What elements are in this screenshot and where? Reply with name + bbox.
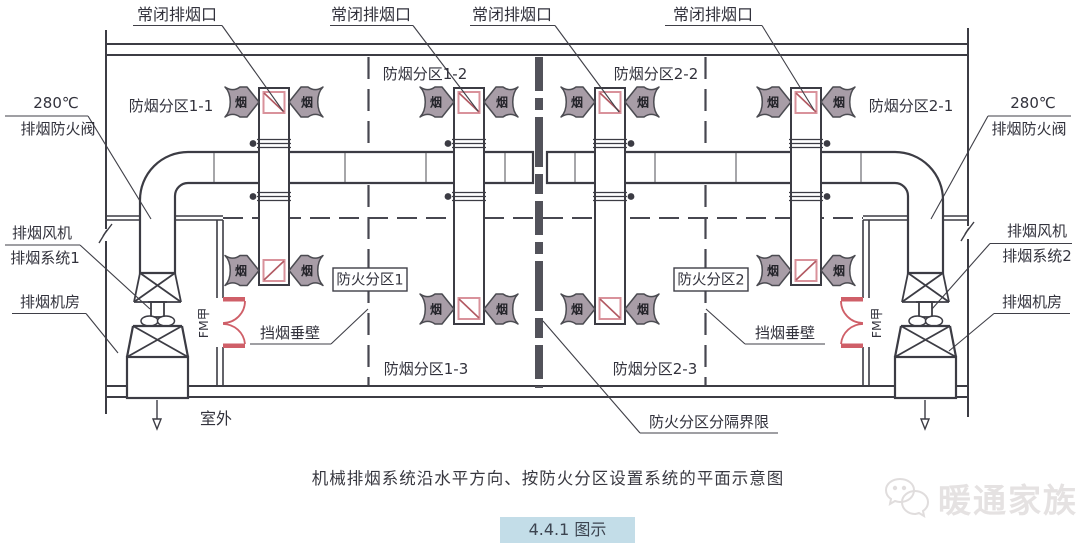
smoke-label: 烟: [235, 264, 247, 278]
smoke-label: 烟: [767, 96, 779, 110]
chat-bubbles-icon: [882, 475, 932, 521]
right-fire-door: [841, 297, 863, 348]
smoke-label: 烟: [496, 96, 508, 110]
smoke-barrier-label-right: 挡烟垂壁: [755, 324, 815, 342]
fire-compartment-1-label: 防火分区1: [336, 272, 403, 289]
smoke-label: 烟: [767, 264, 779, 278]
fan-label-left: 排烟风机: [12, 224, 72, 242]
smoke-label: 烟: [833, 264, 845, 278]
closed-vent-label: 常闭排烟口: [472, 5, 552, 24]
fan-room-label-right: 排烟机房: [1002, 293, 1062, 311]
left-fire-door: [223, 297, 245, 348]
system-1-label: 排烟系统1: [10, 249, 80, 267]
closed-vent-label: 常闭排烟口: [673, 5, 753, 24]
outdoor-discharge-arrows: [153, 400, 929, 429]
zone-label-1-3: 防烟分区1-3: [384, 360, 469, 378]
left-exhaust-fan: [127, 273, 188, 398]
system-2-label: 排烟系统2: [1002, 247, 1072, 265]
closed-vent-label: 常闭排烟口: [331, 5, 411, 24]
closed-vent-label: 常闭排烟口: [137, 5, 217, 24]
plan-diagram: 烟 烟 烟 烟 烟 烟 烟 烟 烟 烟 烟 烟 烟 烟 烟 烟: [0, 0, 1080, 545]
smoke-exhaust-plan-figure: 烟 烟 烟 烟 烟 烟 烟 烟 烟 烟 烟 烟 烟 烟 烟 烟: [0, 0, 1080, 545]
smoke-label: 烟: [301, 264, 313, 278]
fire-boundary-label: 防火分区分隔界限: [649, 413, 769, 431]
outdoor-label: 室外: [200, 409, 232, 428]
smoke-label: 烟: [833, 96, 845, 110]
smoke-label: 烟: [571, 303, 583, 317]
zone-label-1-1: 防烟分区1-1: [129, 97, 214, 115]
zone-label-1-2: 防烟分区1-2: [383, 65, 468, 83]
temp-label-left: 280℃: [33, 94, 78, 112]
fire-damper-label-left: 排烟防火阀: [20, 120, 95, 138]
fire-door-label-right: FM甲: [869, 308, 884, 338]
watermark: 暖通家族: [882, 474, 1078, 522]
smoke-barrier-label-left: 挡烟垂壁: [260, 324, 320, 342]
smoke-label: 烟: [496, 303, 508, 317]
smoke-label: 烟: [571, 96, 583, 110]
figure-title: 机械排烟系统沿水平方向、按防火分区设置系统的平面示意图: [312, 465, 785, 489]
smoke-label: 烟: [430, 303, 442, 317]
smoke-label: 烟: [235, 96, 247, 110]
smoke-label: 烟: [430, 96, 442, 110]
smoke-label: 烟: [637, 303, 649, 317]
fire-damper-label-right: 排烟防火阀: [991, 120, 1066, 138]
smoke-label: 烟: [301, 96, 313, 110]
smoke-label: 烟: [637, 96, 649, 110]
zone-label-2-3: 防烟分区2-3: [613, 360, 698, 378]
fire-compartment-2-label: 防火分区2: [677, 272, 744, 289]
fire-door-label-left: FM甲: [196, 308, 211, 338]
temp-label-right: 280℃: [1010, 94, 1055, 112]
zone-label-2-2: 防烟分区2-2: [614, 65, 699, 83]
fan-label-right: 排烟风机: [1007, 222, 1067, 240]
zone-label-2-1: 防烟分区2-1: [869, 97, 954, 115]
fan-room-label-left: 排烟机房: [20, 293, 80, 311]
watermark-text: 暖通家族: [938, 474, 1078, 522]
figure-caption: 4.4.1 图示: [500, 517, 635, 543]
